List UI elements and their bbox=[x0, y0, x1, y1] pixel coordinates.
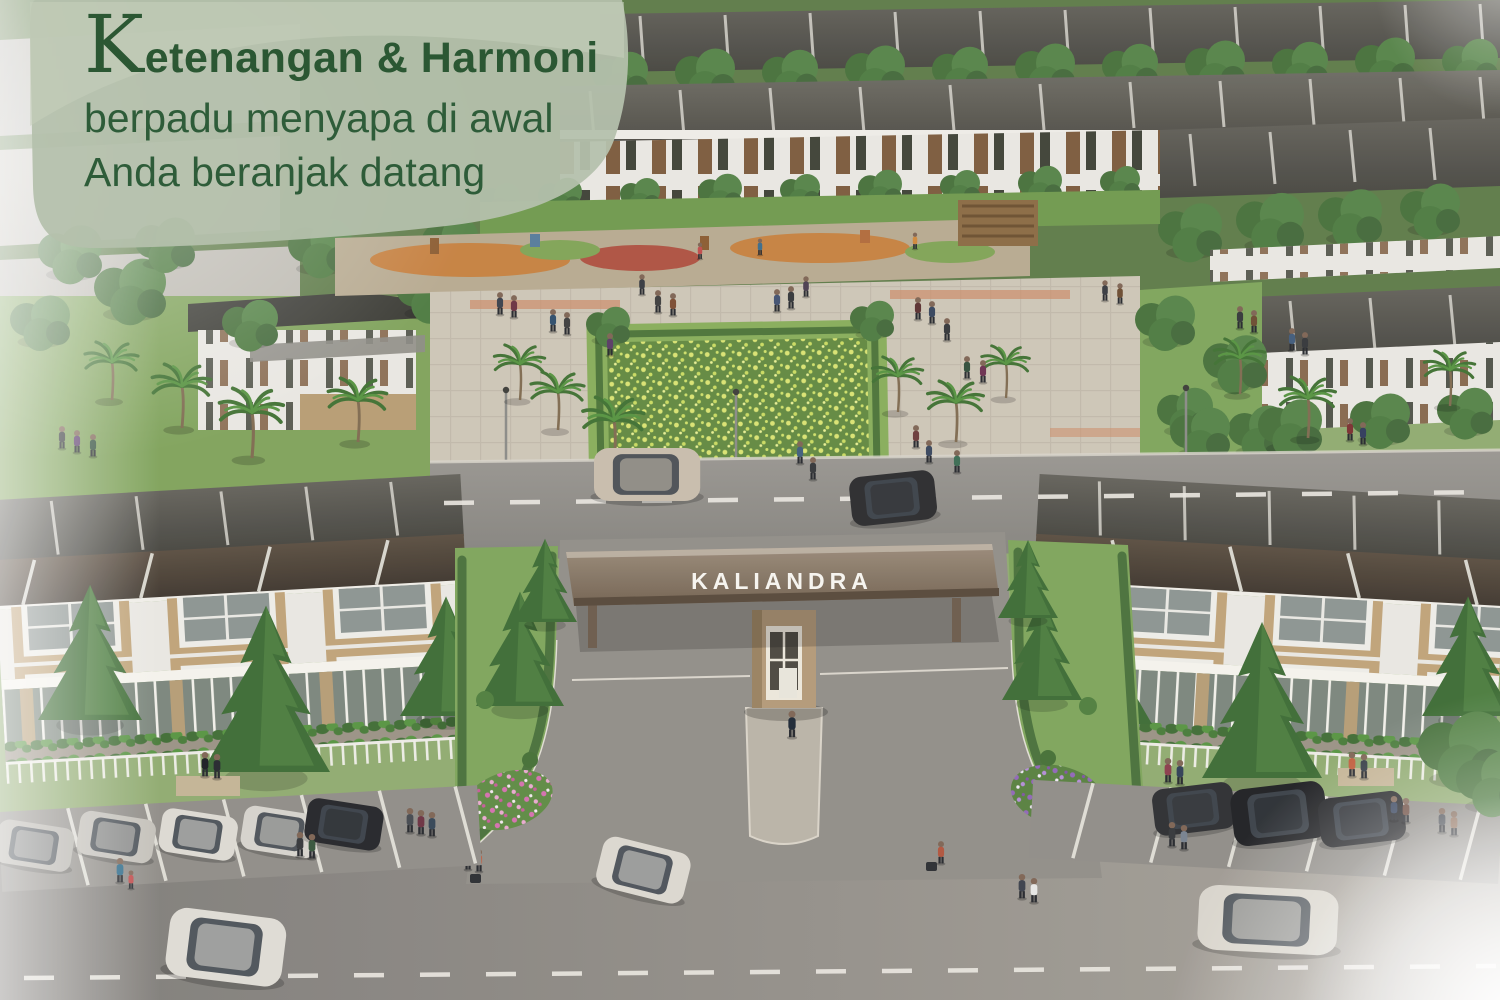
headline-rest: etenangan & Harmoni bbox=[145, 34, 599, 83]
headline-panel: Ketenangan & Harmoni berpadu menyapa di … bbox=[26, 0, 638, 262]
headline-line2: berpadu menyapa di awal bbox=[84, 91, 624, 145]
estate-aerial-render: KALIANDRA bbox=[0, 0, 1500, 1000]
headline-line3: Anda beranjak datang bbox=[84, 145, 624, 199]
headline-dropcap: K bbox=[84, 12, 144, 78]
headline: Ketenangan & Harmoni bbox=[84, 12, 624, 83]
